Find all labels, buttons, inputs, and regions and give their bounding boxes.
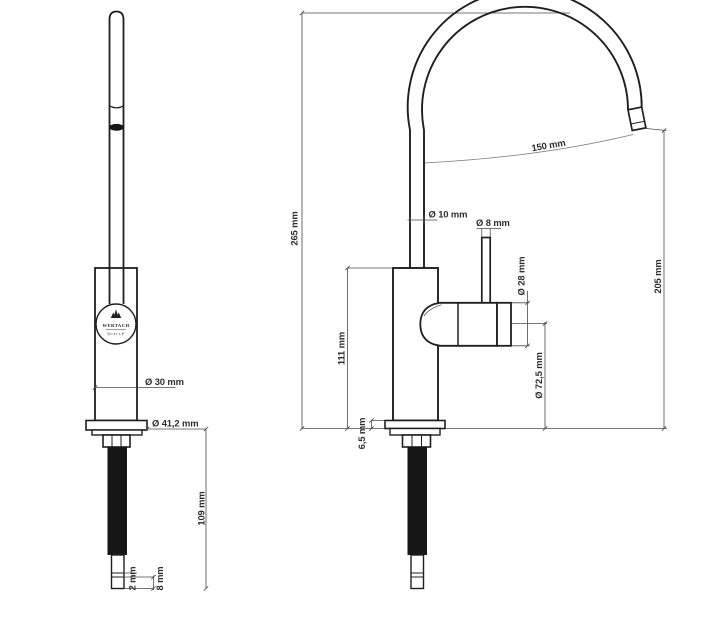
dim-total-height-label: 265 mm — [289, 211, 300, 245]
dim-thread-length: 109 mm — [196, 427, 209, 591]
base-flange-side — [385, 421, 445, 429]
dim-flange-thickness-label: 6,5 mm — [356, 418, 367, 450]
dim-flange-thickness: 6,5 mm — [356, 418, 385, 450]
dim-outlet-height-label: 205 mm — [652, 259, 663, 293]
brand-subtitle: QUELLE — [107, 332, 124, 336]
dim-outlet-height: 205 mm — [646, 128, 667, 430]
hex-nut-side — [403, 435, 431, 447]
dim-flange-diameter-label: Ø 41,2 mm — [152, 418, 199, 429]
dim-handle-diameter-label: Ø 28 mm — [516, 257, 527, 296]
dim-tip-end-label: 8 mm — [154, 566, 165, 590]
handle-endcap — [497, 303, 511, 346]
dim-body-diameter-label: Ø 30 mm — [145, 376, 184, 387]
dim-body-diameter: Ø 30 mm — [93, 376, 184, 390]
dim-thread-length-label: 109 mm — [196, 491, 207, 525]
dim-handle-axis-height-label: Ø 72,5 mm — [533, 352, 544, 399]
dim-spout-tube-diameter: Ø 10 mm — [408, 209, 468, 224]
brand-name: WERTACH — [102, 323, 129, 328]
dim-lever-rod-diameter-label: Ø 8 mm — [476, 217, 510, 228]
dim-handle-diameter: Ø 28 mm — [511, 257, 530, 348]
spout-front — [110, 12, 124, 305]
lever-rod — [482, 238, 490, 304]
dim-flange-diameter: Ø 41,2 mm — [145, 418, 207, 432]
shank-tip-side — [411, 555, 424, 589]
front-view: WERTACH QUELLE Ø 30 mm Ø 41,2 mm 109 mm … — [86, 12, 208, 591]
threaded-shank-side — [408, 447, 428, 555]
dim-spout-tube-diameter-label: Ø 10 mm — [429, 209, 468, 220]
aerator-nozzle — [628, 107, 646, 130]
nozzle-band-front — [110, 106, 124, 108]
drawing-canvas: 265 mm 111 mm 6,5 mm 205 mm Ø 28 mm Ø 72… — [0, 0, 716, 632]
dim-handle-axis-height: Ø 72,5 mm — [511, 321, 547, 430]
base-flange-front — [86, 421, 147, 431]
threaded-shank-front — [108, 447, 128, 555]
side-view: 265 mm 111 mm 6,5 mm 205 mm Ø 28 mm Ø 72… — [289, 0, 668, 589]
hex-nut-front — [103, 435, 130, 447]
dim-body-height-label: 111 mm — [336, 332, 347, 365]
base-collar-side — [390, 429, 440, 436]
dim-tip-groove: 2 mm — [125, 566, 138, 590]
dim-spout-reach: 150 mm — [424, 135, 633, 164]
faucet-technical-drawing: 265 mm 111 mm 6,5 mm 205 mm Ø 28 mm Ø 72… — [0, 0, 716, 632]
aerator-opening-front — [109, 124, 124, 131]
spout-reach-leader — [424, 135, 633, 164]
dim-lever-rod-diameter: Ø 8 mm — [476, 217, 510, 237]
shank-tip-front — [112, 555, 125, 589]
dim-body-height: 111 mm — [336, 266, 394, 431]
dim-tip-groove-label: 2 mm — [127, 566, 138, 590]
gooseneck-spout — [408, 0, 642, 269]
logo-badge: WERTACH QUELLE — [96, 304, 136, 344]
dim-total-height: 265 mm — [289, 11, 305, 431]
